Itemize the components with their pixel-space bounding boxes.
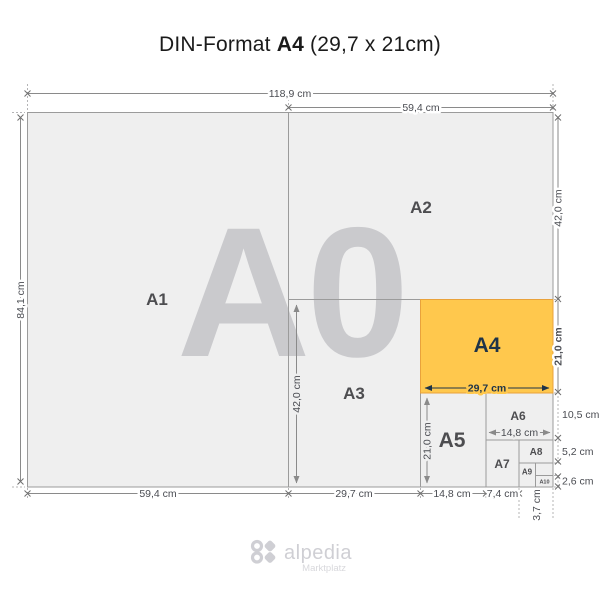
logo-tagline-text: Marktplatz [302,563,346,574]
dimension-height-a2: 42,0 cm [553,115,565,303]
dimension-height-total: 84,1 cm [15,115,27,485]
dim-width-a2-value: 59,4 cm [402,102,440,114]
paper-sizes-diagram: A0 A1 A2 A3 A4 A5 A6 A7 A8 A9 A10 [0,0,600,600]
dim-a3-inner-height-value: 42,0 cm [291,375,303,413]
label-a2: A2 [410,198,432,217]
dim-height-total-value: 84,1 cm [15,281,27,319]
label-a3: A3 [343,384,365,403]
dim-width-a5-value: 14,8 cm [433,488,471,500]
dimension-height-a10: 2,6 cm [555,474,594,490]
dim-width-a7-value: 7,4 cm [487,488,519,500]
dim-width-a1-value: 59,4 cm [139,488,177,500]
dim-a5-inner-height-value: 21,0 cm [422,422,434,460]
dim-height-a2-value: 42,0 cm [553,189,565,227]
label-a9: A9 [522,468,533,477]
dimension-width-total: 118,9 cm [25,88,557,100]
label-a5: A5 [439,429,466,452]
dimension-height-a6: 10,5 cm [555,396,600,441]
dimension-height-a8: 5,2 cm [555,441,594,465]
din-format-infographic: DIN-Format A4 (29,7 x 21cm) A0 [0,0,600,600]
label-a6: A6 [510,409,526,423]
dimension-height-a4: 21,0 cm [553,301,565,395]
label-a8: A8 [530,447,543,458]
logo-flower-icon [253,540,277,564]
logo: alpedia Marktplatz [253,540,353,574]
dimension-bottom-row: 59,4 cm 29,7 cm 14,8 cm 7,4 cm 3,7 cm [25,488,544,521]
dim-height-a10-value: 2,6 cm [562,476,594,488]
dim-width-a9-value: 3,7 cm [531,489,543,521]
label-a4: A4 [474,334,501,357]
label-a10: A10 [539,480,549,486]
label-a1: A1 [146,290,168,309]
label-a7: A7 [494,457,510,471]
dim-a6-inner-width-value: 14,8 cm [501,427,539,439]
dim-height-a6-value: 10,5 cm [562,409,600,421]
dim-height-a8-value: 5,2 cm [562,446,594,458]
dim-height-a4-value: 21,0 cm [553,327,565,366]
dim-a4-inner-width-value: 29,7 cm [468,383,507,395]
dim-width-a3-value: 29,7 cm [335,488,373,500]
watermark-a0: A0 [177,190,406,396]
logo-brand-text: alpedia [284,542,352,564]
dim-width-total-value: 118,9 cm [269,88,312,100]
